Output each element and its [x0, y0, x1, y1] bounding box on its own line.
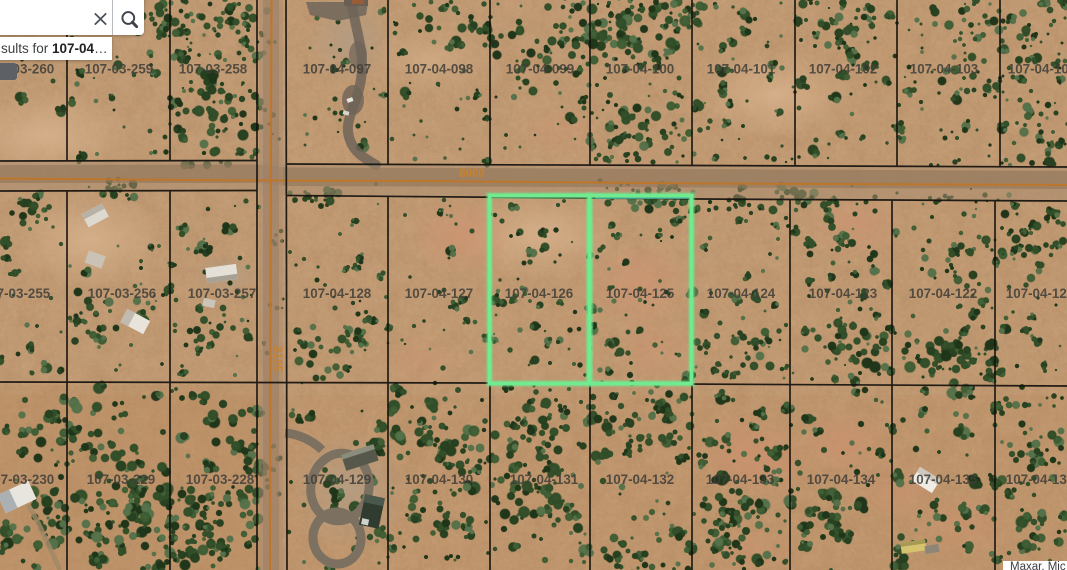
svg-text:8105: 8105 [271, 346, 283, 372]
svg-text:107-03-230: 107-03-230 [0, 472, 54, 487]
svg-text:107-04-131: 107-04-131 [510, 472, 579, 487]
svg-text:107-04-103: 107-04-103 [910, 62, 979, 77]
svg-text:107-04-104: 107-04-104 [1008, 62, 1067, 77]
svg-text:107-04-128: 107-04-128 [303, 286, 372, 301]
svg-text:107-04-135: 107-04-135 [909, 472, 978, 487]
svg-text:107-04-130: 107-04-130 [405, 472, 474, 487]
svg-text:107-03-257: 107-03-257 [188, 286, 257, 301]
svg-text:107-04-123: 107-04-123 [809, 286, 878, 301]
svg-text:107-04-101: 107-04-101 [707, 62, 776, 77]
svg-text:107-04-100: 107-04-100 [606, 62, 675, 77]
svg-text:107-04-124: 107-04-124 [707, 286, 776, 301]
svg-text:107-04-129: 107-04-129 [303, 472, 372, 487]
svg-text:107-04-136: 107-04-136 [1006, 472, 1067, 487]
svg-text:107-03-256: 107-03-256 [88, 286, 157, 301]
svg-text:107-04-121: 107-04-121 [1006, 286, 1067, 301]
svg-text:107-04-133: 107-04-133 [706, 472, 775, 487]
svg-text:107-03-258: 107-03-258 [179, 62, 248, 77]
svg-text:107-04-099: 107-04-099 [506, 62, 575, 77]
svg-text:107-04-122: 107-04-122 [909, 286, 978, 301]
svg-text:107-03-255: 107-03-255 [0, 286, 51, 301]
svg-text:107-04-125: 107-04-125 [606, 286, 675, 301]
svg-text:107-03-228: 107-03-228 [186, 472, 255, 487]
svg-text:8060: 8060 [459, 168, 485, 180]
svg-text:107-04-097: 107-04-097 [303, 62, 372, 77]
svg-text:107-04-126: 107-04-126 [505, 286, 574, 301]
svg-text:107-04-132: 107-04-132 [606, 472, 675, 487]
svg-text:107-04-127: 107-04-127 [405, 286, 474, 301]
svg-text:107-04-134: 107-04-134 [807, 472, 876, 487]
svg-text:107-03-229: 107-03-229 [87, 472, 156, 487]
svg-text:107-04-102: 107-04-102 [809, 62, 878, 77]
svg-text:107-04-098: 107-04-098 [405, 62, 474, 77]
svg-text:107-03-259: 107-03-259 [85, 62, 154, 77]
